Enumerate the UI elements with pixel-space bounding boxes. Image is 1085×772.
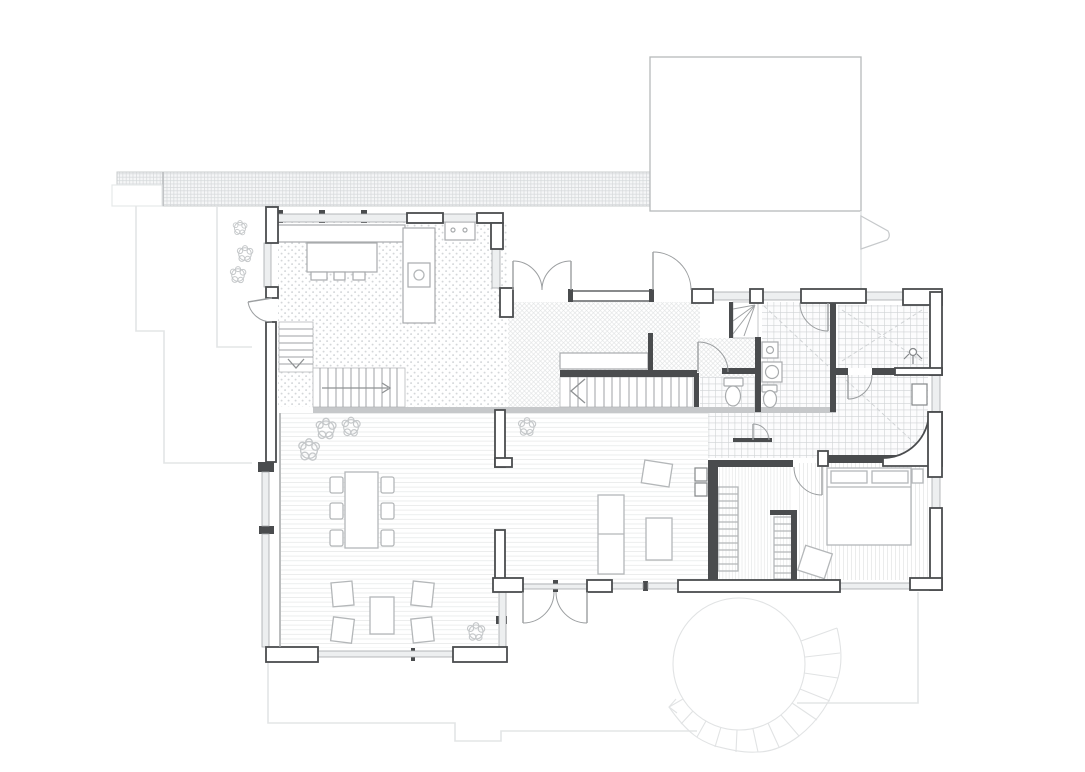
dining-chair <box>381 477 394 493</box>
terrace-door-west <box>248 298 272 322</box>
chaise <box>646 518 672 560</box>
kitchen-sink <box>445 222 475 240</box>
window-jamb <box>568 289 573 302</box>
stair-wall <box>560 370 697 377</box>
south-window <box>648 583 678 589</box>
west-mullion <box>259 526 274 534</box>
north-window <box>866 292 903 300</box>
faucet-icon <box>451 228 455 232</box>
entry-double-door <box>513 261 571 290</box>
south-wall <box>587 580 612 592</box>
west-wall <box>266 287 278 298</box>
outbuilding-outline <box>650 57 861 211</box>
gravel-strip <box>117 172 650 206</box>
east-wall-return <box>895 368 942 375</box>
nightstand <box>912 469 923 483</box>
south-window <box>840 583 910 589</box>
window-jamb <box>649 289 654 302</box>
wc-wall-left <box>694 373 699 407</box>
floor-plan-drawing: Architectural floor plan — ground floor <box>0 0 1085 772</box>
pillow <box>831 471 867 483</box>
oven <box>408 263 430 287</box>
french-doors-south <box>523 592 587 623</box>
pier-wall-foot <box>495 458 512 467</box>
west-window <box>262 472 269 526</box>
electrical-panel <box>912 384 927 405</box>
kitchen-counter <box>278 225 405 242</box>
exterior-spiral-stair <box>669 598 841 752</box>
entry-hall-floor-2 <box>508 377 560 407</box>
closet-west-wall <box>708 460 718 580</box>
dining-chair <box>330 503 343 519</box>
armchair <box>411 617 434 643</box>
closet-north-wall <box>708 460 793 467</box>
south-mullion <box>643 581 648 591</box>
se-corner <box>910 578 942 590</box>
south-window <box>318 651 453 657</box>
east-window <box>932 477 940 508</box>
closet-stub-wall <box>770 510 797 515</box>
sideboard <box>560 353 648 369</box>
hall-framed-window <box>571 291 651 301</box>
armchair <box>411 581 434 607</box>
east-wall <box>930 292 942 375</box>
sink-window <box>443 214 477 222</box>
north-window <box>713 292 750 300</box>
dining-chair <box>330 530 343 546</box>
bed <box>827 468 911 545</box>
toilet-bowl <box>764 391 777 408</box>
site-pad <box>112 185 162 206</box>
pillow <box>872 471 908 483</box>
living-east-window <box>499 592 506 648</box>
faucet-icon <box>463 228 467 232</box>
north-wall <box>407 213 443 223</box>
shower-wall-2 <box>872 368 896 375</box>
dining-set <box>330 472 394 548</box>
bedroom-door-pier <box>818 451 828 466</box>
closet-bedroom-wall <box>791 515 797 580</box>
kitchen-stair-run <box>313 368 405 407</box>
pier-wall-foot <box>493 578 523 592</box>
dining-chair <box>330 477 343 493</box>
kitchen-north-window <box>278 214 407 222</box>
north-wall <box>692 289 713 303</box>
coffee-table <box>370 597 394 634</box>
pier-wall <box>495 530 505 582</box>
dining-table <box>345 472 378 548</box>
north-wall <box>750 289 763 303</box>
entry-pier <box>500 288 513 317</box>
lounge-chair <box>641 460 672 487</box>
laundry-shower-wall <box>830 302 836 412</box>
south-window <box>612 583 643 589</box>
west-wall <box>266 322 276 462</box>
outbuilding <box>650 57 889 302</box>
shower-wall <box>836 368 848 375</box>
kitchen-island <box>307 243 377 272</box>
nw-pillar <box>266 207 278 243</box>
north-wall <box>801 289 866 303</box>
armchair <box>331 617 355 643</box>
winder-wall <box>729 302 733 338</box>
site-boundary-west <box>136 206 252 463</box>
kitchen-stair-down <box>279 322 313 372</box>
armchair <box>331 581 354 607</box>
hall-niche-wall <box>648 333 653 373</box>
terrace-outline-east <box>797 592 918 703</box>
french-door-threshold <box>523 584 587 589</box>
dining-chair <box>381 530 394 546</box>
shower-head-icon <box>910 349 917 356</box>
hall-stair-down <box>560 377 693 407</box>
south-wall <box>678 580 840 592</box>
floor-plan-page: Architectural floor plan — ground floor <box>0 0 1085 772</box>
island-stools <box>311 272 365 280</box>
sw-corner <box>266 647 318 662</box>
gate-symbol <box>861 216 889 249</box>
west-window <box>262 534 269 647</box>
west-window <box>264 243 271 287</box>
north-wall-return <box>491 223 503 249</box>
hall-laundry-wall <box>755 337 761 412</box>
kitchen-east-window <box>492 249 500 288</box>
west-mullion <box>258 462 274 472</box>
south-wall <box>453 647 507 662</box>
dining-chair <box>381 503 394 519</box>
east-wall <box>928 412 942 477</box>
terrace-outline-south <box>268 663 697 741</box>
north-window <box>763 292 801 300</box>
corridor-floor <box>708 413 836 458</box>
north-wall <box>477 213 503 223</box>
north-door <box>653 252 691 290</box>
